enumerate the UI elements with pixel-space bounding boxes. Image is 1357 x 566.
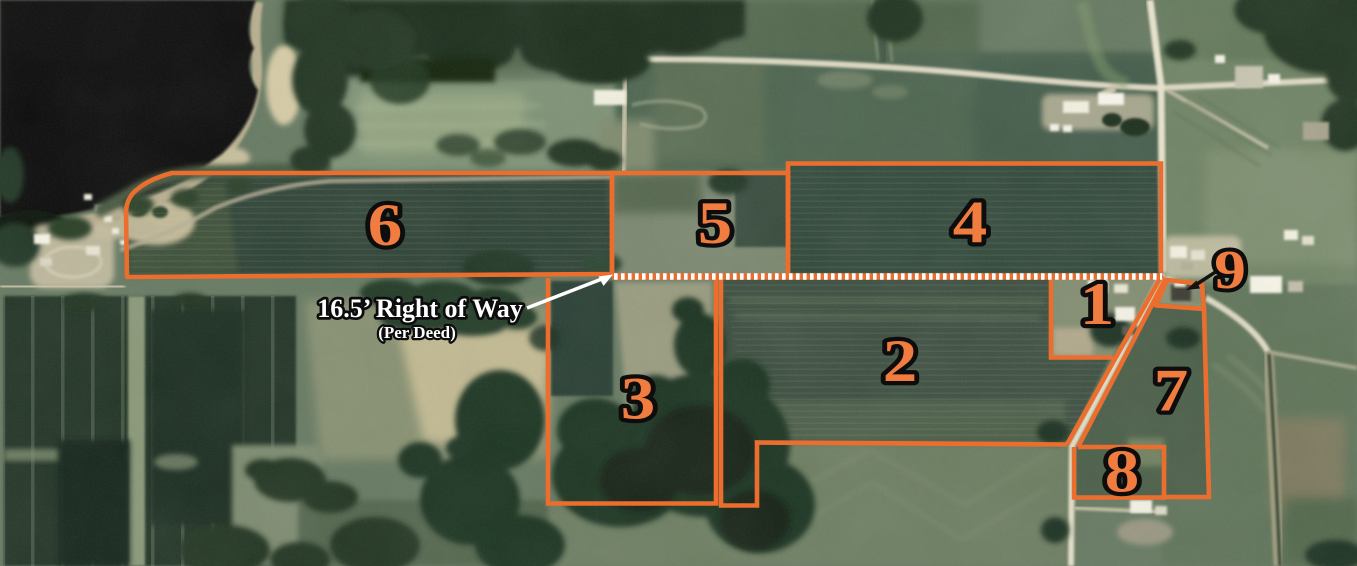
svg-text:(Per Deed): (Per Deed) (378, 323, 456, 342)
svg-text:4: 4 (953, 189, 987, 256)
svg-text:9: 9 (1214, 239, 1246, 300)
svg-text:16.5’ Right of Way: 16.5’ Right of Way (317, 294, 523, 323)
svg-text:5: 5 (698, 189, 732, 256)
svg-text:1: 1 (1080, 270, 1114, 337)
svg-text:3: 3 (621, 365, 655, 432)
svg-text:7: 7 (1154, 357, 1188, 424)
svg-text:8: 8 (1105, 438, 1139, 505)
svg-text:2: 2 (883, 327, 917, 394)
svg-text:6: 6 (368, 191, 402, 258)
